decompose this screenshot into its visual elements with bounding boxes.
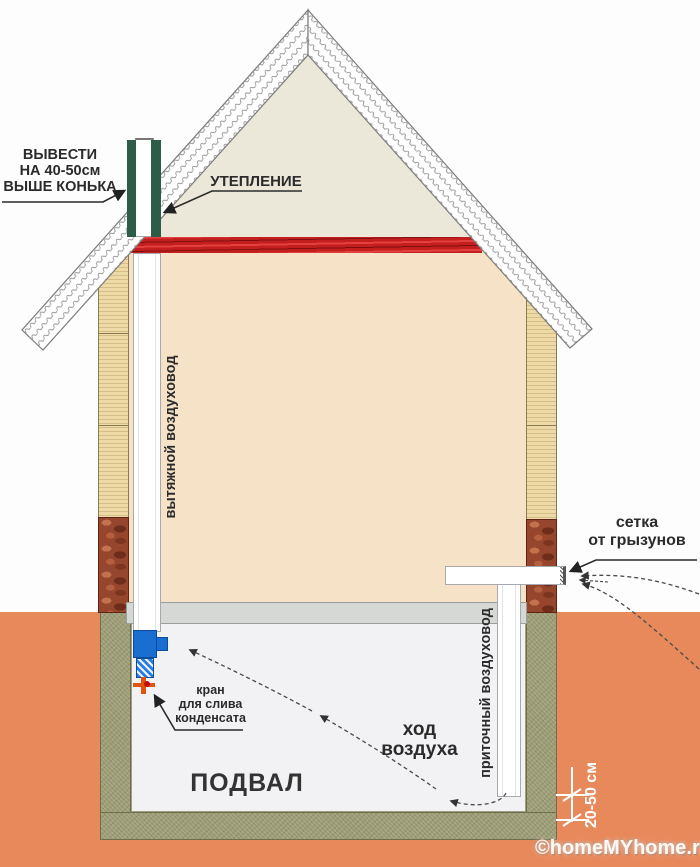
ridge-outlet-line1: ВЫВЕСТИ	[0, 147, 120, 163]
ridge-outlet-label: ВЫВЕСТИ НА 40-50см ВЫШЕ КОНЬКА	[0, 147, 120, 196]
annotations	[0, 0, 700, 867]
supply-duct-label: приточный воздуховод	[478, 588, 494, 798]
condensate-drain-line3: конденсата	[163, 711, 258, 725]
ridge-outlet-line3: ВЫШЕ КОНЬКА	[0, 179, 120, 195]
air-flow-line2: воздуха	[372, 740, 467, 760]
rodent-mesh-line1: сетка	[578, 514, 696, 532]
basement-label: ПОДВАЛ	[183, 769, 311, 797]
leader-insulation	[165, 191, 302, 212]
leader-rodent-mesh	[571, 560, 697, 571]
rodent-mesh-line2: от грызунов	[578, 532, 696, 550]
airflow-intake-short	[580, 580, 608, 582]
air-flow-label: ход воздуха	[372, 720, 467, 760]
rodent-mesh-label: сетка от грызунов	[578, 514, 696, 550]
condensate-drain-line2: для слива	[163, 697, 258, 711]
air-flow-line1: ход	[372, 720, 467, 740]
condensate-drain-label: кран для слива конденсата	[163, 683, 258, 725]
diagram-canvas: ВЫВЕСТИ НА 40-50см ВЫШЕ КОНЬКА УТЕПЛЕНИЕ…	[0, 0, 700, 867]
condensate-drain-line1: кран	[163, 683, 258, 697]
watermark: ©homeMYhome.ru	[535, 837, 700, 860]
airflow-intake-arc-2	[583, 584, 699, 669]
exhaust-duct-label: вытяжной воздуховод	[163, 339, 179, 535]
airflow-intake-arc-1	[582, 575, 699, 594]
floor-clearance-label: 20-50 см	[583, 755, 601, 835]
insulation-label: УТЕПЛЕНИЕ	[206, 174, 306, 191]
ridge-outlet-line2: НА 40-50см	[0, 163, 120, 179]
